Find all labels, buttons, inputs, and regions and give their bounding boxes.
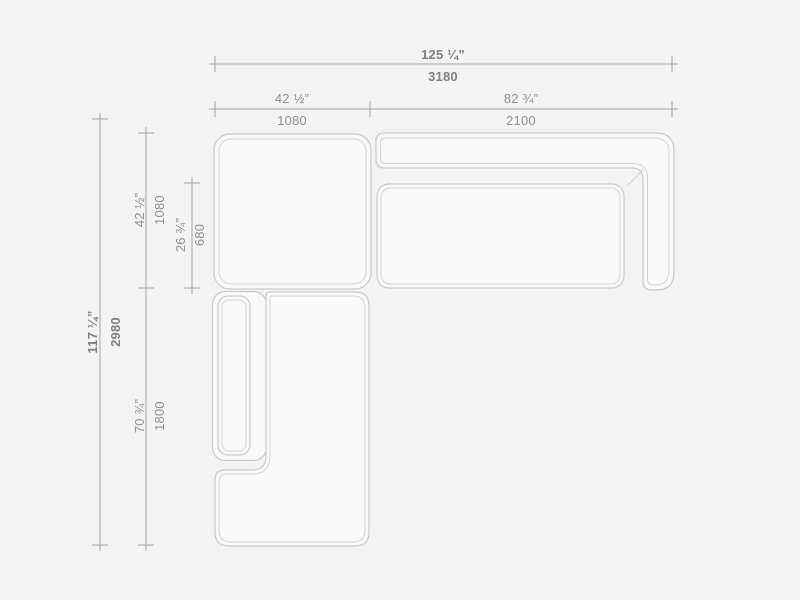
overall-width-mm-label: 3180: [428, 69, 458, 84]
right-module-width-mm-label: 2100: [506, 113, 536, 128]
corner-module-width-mm-label: 1080: [277, 113, 307, 128]
dimension-lines: [92, 56, 678, 551]
overall-width-inches-label: 125 ¼”: [421, 47, 465, 62]
seat-depth-inches-label: 26 ¾”: [173, 218, 188, 252]
chaise-depth-inches-label: 70 ¾”: [132, 399, 147, 433]
corner-module-outer-edge: [214, 134, 371, 289]
corner-module: [214, 134, 371, 289]
right-module-corner-miter-seam: [628, 169, 644, 185]
technical-drawing-canvas: 125 ¼” 3180 42 ½” 1080 82 ¾” 2100 117 ¼”…: [0, 0, 800, 600]
sofa-plan-drawing: 125 ¼” 3180 42 ½” 1080 82 ¾” 2100 117 ¼”…: [0, 0, 800, 600]
overall-depth-mm-label: 2980: [108, 317, 123, 347]
seat-depth-mm-label: 680: [192, 224, 207, 246]
corner-module-width-inches-label: 42 ½”: [275, 91, 309, 106]
right-module-seat-cushion-outer-edge: [377, 184, 624, 288]
corner-module-depth-mm-label: 1080: [152, 195, 167, 225]
right-module-width-inches-label: 82 ¾”: [504, 91, 538, 106]
chaise-depth-mm-label: 1800: [152, 401, 167, 431]
corner-module-depth-inches-label: 42 ½”: [132, 193, 147, 227]
overall-depth-inches-label: 117 ¼”: [85, 310, 100, 353]
dim-corner-chaise-depth-line: [138, 127, 154, 551]
chaise-armrest-cushion-outer-edge: [218, 296, 250, 455]
right-sofa-module: [376, 133, 674, 290]
chaise-module: [213, 292, 370, 547]
